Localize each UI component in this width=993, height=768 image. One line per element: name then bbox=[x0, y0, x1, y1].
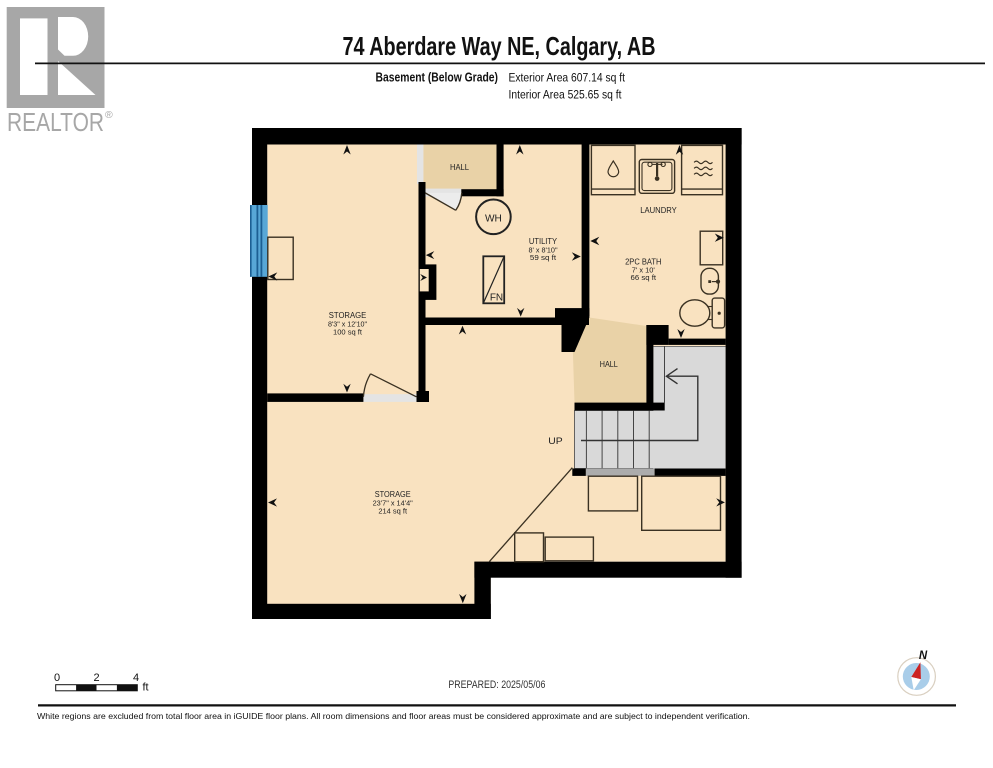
svg-text:WH: WH bbox=[485, 212, 502, 224]
svg-text:N: N bbox=[919, 650, 928, 662]
svg-text:FN: FN bbox=[490, 293, 503, 304]
svg-text:100 sq ft: 100 sq ft bbox=[333, 327, 363, 336]
svg-text:White regions are excluded fro: White regions are excluded from total fl… bbox=[37, 711, 750, 721]
svg-text:4: 4 bbox=[133, 672, 139, 684]
svg-text:74 Aberdare Way NE, Calgary, A: 74 Aberdare Way NE, Calgary, AB bbox=[343, 31, 656, 61]
svg-text:214 sq ft: 214 sq ft bbox=[378, 506, 408, 515]
svg-text:2: 2 bbox=[93, 672, 99, 684]
svg-text:Basement (Below Grade): Basement (Below Grade) bbox=[376, 70, 499, 85]
svg-text:UP: UP bbox=[548, 436, 562, 446]
svg-text:HALL: HALL bbox=[600, 360, 618, 369]
svg-text:REALTOR: REALTOR bbox=[7, 107, 104, 137]
svg-text:66 sq ft: 66 sq ft bbox=[631, 273, 657, 282]
svg-text:59 sq ft: 59 sq ft bbox=[530, 253, 557, 262]
svg-text:ft: ft bbox=[143, 682, 149, 694]
svg-text:0: 0 bbox=[54, 672, 60, 684]
svg-text:LAUNDRY: LAUNDRY bbox=[640, 205, 677, 215]
svg-text:®: ® bbox=[105, 109, 113, 121]
svg-text:HALL: HALL bbox=[450, 163, 470, 172]
svg-text:PREPARED: 2025/05/06: PREPARED: 2025/05/06 bbox=[448, 679, 545, 691]
svg-text:Interior Area 525.65 sq ft: Interior Area 525.65 sq ft bbox=[509, 88, 622, 102]
svg-text:Exterior Area 607.14 sq ft: Exterior Area 607.14 sq ft bbox=[509, 71, 626, 85]
